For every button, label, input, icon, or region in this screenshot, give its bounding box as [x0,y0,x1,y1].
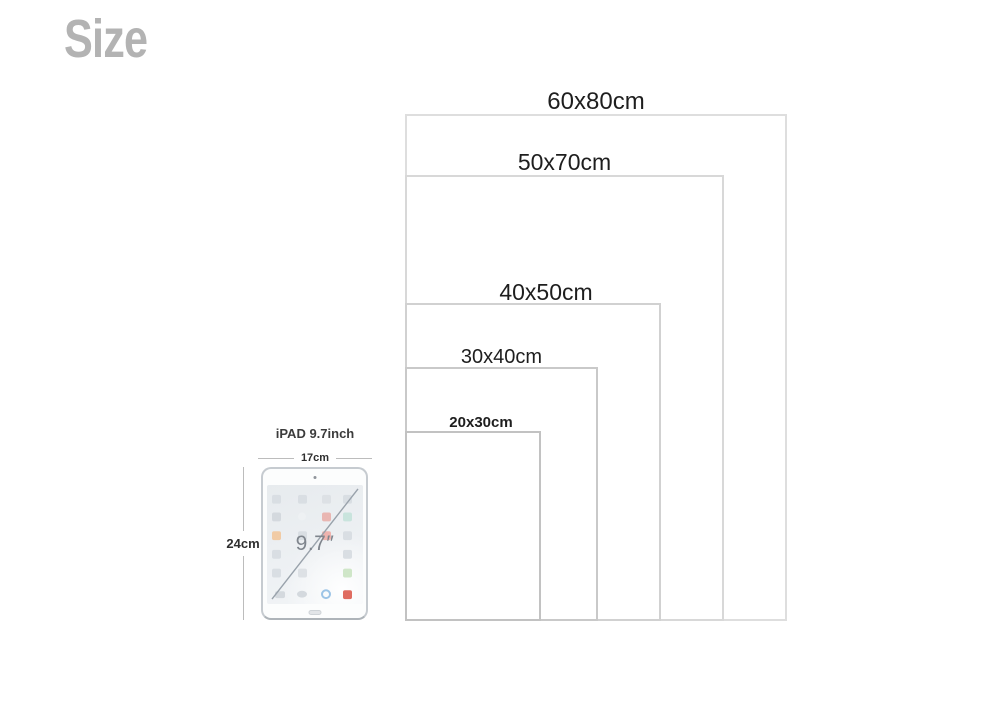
size-label-20x30: 20x30cm [413,415,549,432]
home-button-icon [308,610,321,615]
ipad-width-measure: 17cm [258,451,372,465]
ipad-height-measure: 24cm [224,467,262,620]
measure-line-left [258,458,294,459]
size-rect-20x30 [405,431,541,621]
ipad-height-label: 24cm [226,536,259,551]
size-label-30x40: 30x40cm [405,346,598,368]
page-title: Size [64,12,147,66]
ipad-body: 9.7″ [261,467,368,620]
ipad-title: iPAD 9.7inch [250,426,380,441]
measure-line-top [243,467,244,531]
ipad-screen: 9.7″ [267,485,363,604]
camera-dot-icon [313,476,316,479]
measure-line-bottom [243,556,244,620]
ipad-width-label: 17cm [301,452,329,464]
size-comparison-diagram: Size 60x80cm 50x70cm 40x50cm 30x40cm 20x… [0,0,1000,704]
size-label-40x50: 40x50cm [418,280,674,305]
size-label-60x80: 60x80cm [405,89,787,115]
size-label-50x70: 50x70cm [405,150,724,175]
measure-line-right [336,458,372,459]
ipad-diagonal-label: 9.7″ [267,532,363,556]
